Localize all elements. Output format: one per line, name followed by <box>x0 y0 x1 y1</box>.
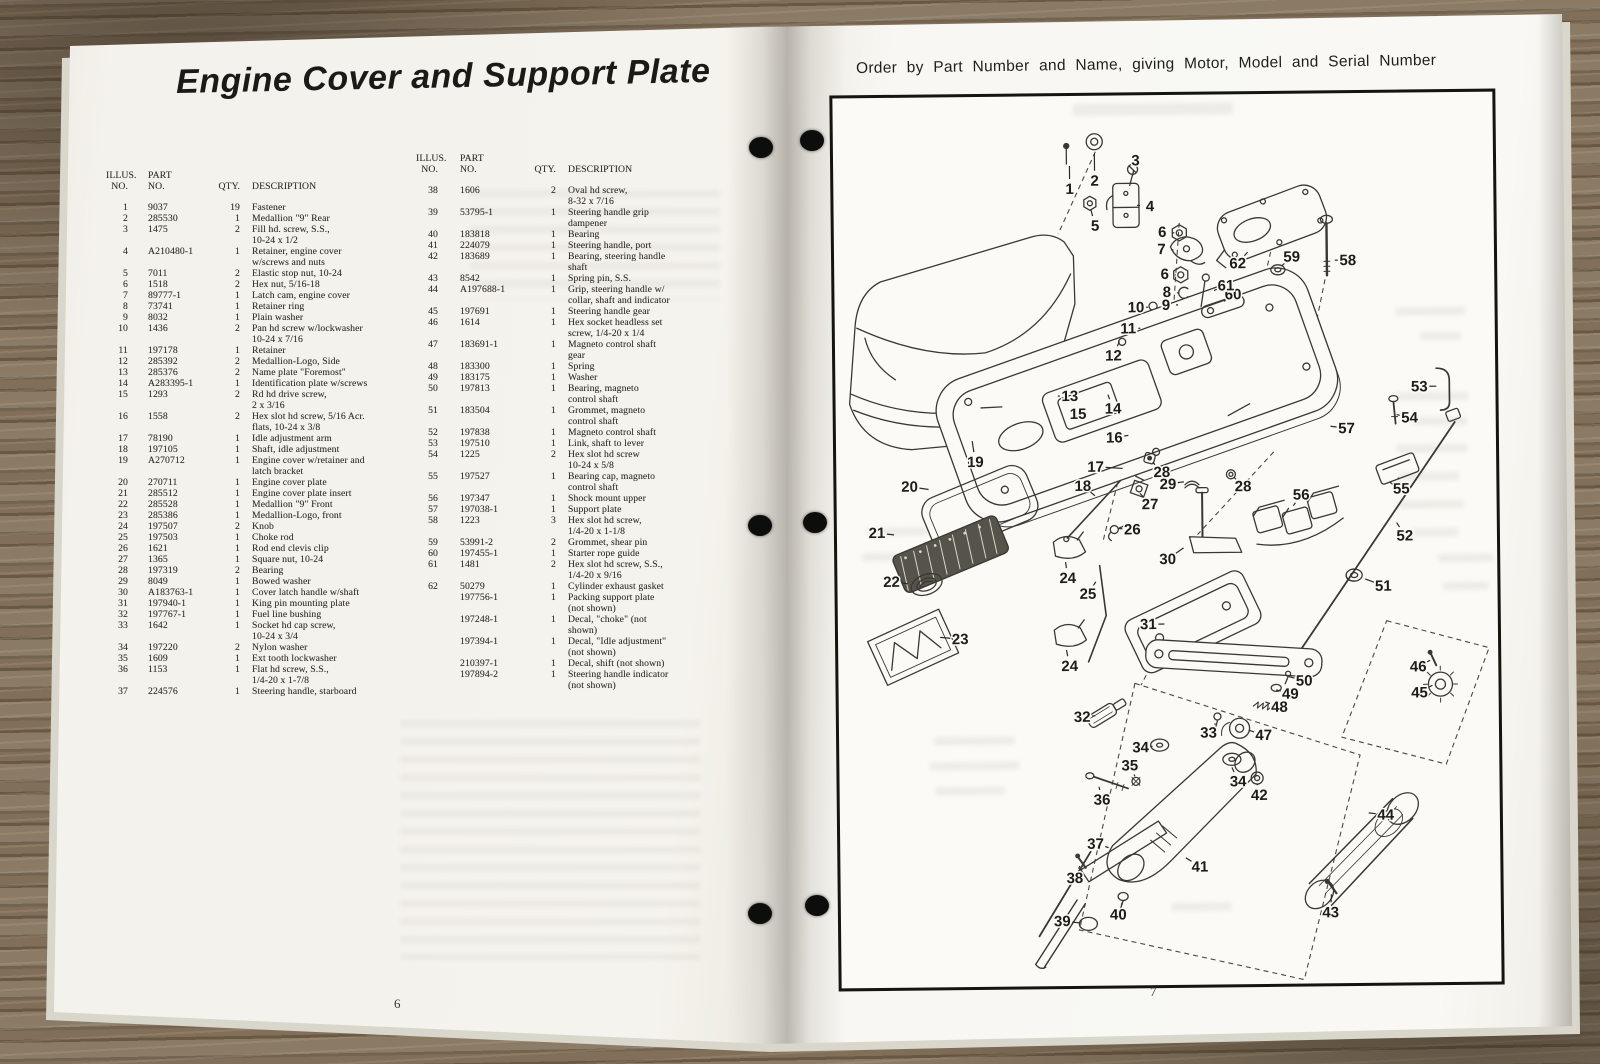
diagram-callout-7: 7 <box>1157 241 1166 258</box>
cell-qty: 1 <box>526 306 556 317</box>
cell-illus-no: 26 <box>106 543 128 554</box>
cell-part-no: 285386 <box>128 510 212 521</box>
cell-qty: 1 <box>526 614 556 625</box>
cell-description: Retainer <box>240 345 382 356</box>
table-row: control shaft <box>416 482 750 493</box>
cell-illus-no: 18 <box>106 444 128 455</box>
diagram-callout-37: 37 <box>1087 836 1104 853</box>
table-row: 1/4-20 x 1-7/8 <box>106 675 382 686</box>
cell-part-no: 183691-1 <box>438 339 526 350</box>
cell-illus-no: 43 <box>416 273 438 284</box>
table-row: 17781901Idle adjustment arm <box>106 433 382 444</box>
cell-description: Washer <box>556 372 750 383</box>
header-gap <box>416 175 750 185</box>
header-part: NO. <box>438 164 526 175</box>
cell-qty: 1 <box>212 686 240 697</box>
diagram-callout-6: 6 <box>1158 224 1167 241</box>
diagram-callout-20: 20 <box>901 479 918 496</box>
cell-description: 10-24 x 3/4 <box>240 631 382 642</box>
table-row: 210397-11Decal, shift (not shown) <box>416 658 750 669</box>
cell-description: Steering handle, port <box>556 240 750 251</box>
table-header-line: ILLUS.PART <box>106 170 382 181</box>
cell-illus-no: 50 <box>416 383 438 394</box>
cell-description: control shaft <box>556 416 750 427</box>
cell-qty: 1 <box>526 317 556 328</box>
header-part: PART <box>128 170 212 181</box>
header-illus: ILLUS. <box>106 170 128 181</box>
diagram-callout-52: 52 <box>1396 527 1413 544</box>
cell-part-no: 1293 <box>128 389 212 400</box>
cell-qty: 1 <box>526 636 556 647</box>
table-row: 2616211Rod end clevis clip <box>106 543 382 554</box>
callout-leader-line <box>1066 650 1067 656</box>
cell-part-no: 50279 <box>438 581 526 592</box>
cell-description: dampener <box>556 218 750 229</box>
cell-qty: 1 <box>526 383 556 394</box>
table-row: 222855281Medallion "9" Front <box>106 499 382 510</box>
cell-illus-no: 30 <box>106 587 128 598</box>
table-row: 341972202Nylon washer <box>106 642 382 653</box>
table-row: 60197455-11Starter rope guide <box>416 548 750 559</box>
cell-description: Ext tooth lockwasher <box>240 653 382 664</box>
diagram-callout-50: 50 <box>1296 672 1313 689</box>
cell-description: Bearing, magneto <box>556 383 750 394</box>
diagram-callout-9: 9 <box>1162 297 1171 314</box>
cell-description: Fuel line bushing <box>240 609 382 620</box>
header-gap <box>106 192 382 202</box>
cell-description: Engine cover w/retainer and <box>240 455 382 466</box>
cell-illus-no: 60 <box>416 548 438 559</box>
cell-illus-no: 34 <box>106 642 128 653</box>
cell-part-no: A210480-1 <box>128 246 212 257</box>
cell-description: Rod end clevis clip <box>240 543 382 554</box>
callout-leader-line <box>901 583 907 584</box>
cell-qty: 1 <box>526 372 556 383</box>
diagram-callout-15: 15 <box>1070 406 1087 423</box>
cell-description: Steering handle gear <box>556 306 750 317</box>
cell-description: Nylon washer <box>240 642 382 653</box>
table-header-line: NO.NO.QTY.DESCRIPTION <box>416 164 750 175</box>
diagram-callout-59: 59 <box>1283 249 1300 266</box>
table-row: 8-32 x 7/16 <box>416 196 750 207</box>
cell-part-no: 197105 <box>128 444 212 455</box>
cell-part-no: 270711 <box>128 477 212 488</box>
cell-illus-no: 39 <box>416 207 438 218</box>
cell-qty: 1 <box>526 284 556 295</box>
cell-part-no: 197347 <box>438 493 526 504</box>
cell-part-no: A197688-1 <box>438 284 526 295</box>
table-row: 401838181Bearing <box>416 229 750 240</box>
table-row: 412240791Steering handle, port <box>416 240 750 251</box>
punch-hole <box>749 137 773 158</box>
diagram-callout-5: 5 <box>1091 218 1100 235</box>
cell-illus-no: 10 <box>106 323 128 334</box>
knob-24b <box>1054 620 1086 647</box>
diagram-callout-32: 32 <box>1074 709 1091 726</box>
cell-qty: 2 <box>212 367 240 378</box>
cell-qty: 1 <box>526 669 556 680</box>
page-number-right: 7 <box>1150 984 1157 1000</box>
diagram-callout-4: 4 <box>1146 198 1155 215</box>
cell-description: Bowed washer <box>240 576 382 587</box>
cell-part-no: 285528 <box>128 499 212 510</box>
cell-illus-no: 32 <box>106 609 128 620</box>
cell-illus-no: 41 <box>416 240 438 251</box>
cell-part-no: 73741 <box>128 301 212 312</box>
retainer-ring-8 <box>1179 287 1188 298</box>
cell-qty: 19 <box>212 202 240 213</box>
table-row: dampener <box>416 218 750 229</box>
cell-part-no: 1475 <box>128 224 212 235</box>
cell-qty: 2 <box>212 268 240 279</box>
cell-part-no: 1153 <box>128 664 212 675</box>
cell-qty: 1 <box>212 378 240 389</box>
cell-part-no: 1621 <box>128 543 212 554</box>
cell-part-no: 224576 <box>128 686 212 697</box>
cell-description: Hex socket headless set <box>556 317 750 328</box>
table-row: (not shown) <box>416 603 750 614</box>
cell-description: Decal, "choke" (not <box>556 614 750 625</box>
callout-leader-line <box>1091 210 1093 216</box>
callout-leader-line <box>1427 660 1430 662</box>
table-row: 241975072Knob <box>106 521 382 532</box>
callout-leader-line <box>1331 894 1332 902</box>
showthrough-smudge <box>400 720 700 960</box>
cell-illus-no: 44 <box>416 284 438 295</box>
diagram-callout-34: 34 <box>1132 739 1150 756</box>
parts-table-column-1: ILLUS.PARTNO.NO.QTY.DESCRIPTION1903719Fa… <box>106 170 382 697</box>
page-title: Engine Cover and Support Plate <box>176 53 657 102</box>
flat-screw-36 <box>1086 772 1128 790</box>
cell-illus-no: 33 <box>106 620 128 631</box>
cell-qty: 2 <box>526 537 556 548</box>
callout-leader-line <box>887 534 894 535</box>
cell-qty: 1 <box>526 240 556 251</box>
table-row: 251975031Choke rod <box>106 532 382 543</box>
callout-leader-line <box>1397 415 1400 416</box>
photo-stage: Engine Cover and Support Plate ILLUS.PAR… <box>0 0 1600 1064</box>
link-shaft-to-lever-53 <box>1436 368 1449 410</box>
cell-illus-no: 14 <box>106 378 128 389</box>
magneto-gear-47 <box>1221 718 1249 738</box>
cell-qty: 1 <box>526 273 556 284</box>
cell-description: Medallion "9" Front <box>240 499 382 510</box>
callout-leader-line <box>1331 426 1337 427</box>
cell-illus-no: 38 <box>416 185 438 196</box>
cell-illus-no: 57 <box>416 504 438 515</box>
header-part: PART <box>438 153 526 164</box>
cell-illus-no: 17 <box>106 433 128 444</box>
diagram-callout-57: 57 <box>1338 420 1355 437</box>
cell-description: Oval hd screw, <box>556 185 750 196</box>
cell-description: Retainer, engine cover <box>240 246 382 257</box>
medallion-ring-2 <box>1086 134 1102 150</box>
cover-plate-insert-21 <box>891 514 1010 594</box>
cell-qty: 1 <box>212 543 240 554</box>
diagram-callout-22: 22 <box>883 574 900 591</box>
callout-leader-line <box>1176 548 1184 553</box>
cell-description: Magneto control shaft <box>556 339 750 350</box>
cell-qty: 1 <box>212 488 240 499</box>
table-row: 551975271Bearing cap, magneto <box>416 471 750 482</box>
table-row: 491831751Washer <box>416 372 750 383</box>
callout-leader-line <box>1124 435 1128 436</box>
cell-illus-no: 20 <box>106 477 128 488</box>
cell-part-no: 1223 <box>438 515 526 526</box>
table-row: 232853861Medallion-Logo, front <box>106 510 382 521</box>
bowed-washer-29 <box>1185 481 1199 488</box>
table-row: 122853922Medallion-Logo, Side <box>106 356 382 367</box>
cell-qty: 1 <box>526 361 556 372</box>
table-row: 4616141Hex socket headless set <box>416 317 750 328</box>
cell-part-no: 183175 <box>438 372 526 383</box>
cell-part-no: 1609 <box>128 653 212 664</box>
cell-description: Engine cover plate insert <box>240 488 382 499</box>
table-row: 481833001Spring <box>416 361 750 372</box>
callout-leader-line <box>1365 579 1374 582</box>
cell-qty: 2 <box>212 389 240 400</box>
cell-description: Bearing <box>240 565 382 576</box>
table-row: 10-24 x 5/8 <box>416 460 750 471</box>
cell-description: Decal, "Idle adjustment" <box>556 636 750 647</box>
cell-illus-no: 48 <box>416 361 438 372</box>
cell-illus-no: 25 <box>106 532 128 543</box>
cell-qty: 2 <box>212 323 240 334</box>
cell-description: gear <box>556 350 750 361</box>
callout-leader-line <box>1178 482 1184 483</box>
cell-part-no: 53795-1 <box>438 207 526 218</box>
handle-grip-44 <box>1298 786 1425 914</box>
table-row: 789777-11Latch cam, engine cover <box>106 290 382 301</box>
cell-description: Identification plate w/screws <box>240 378 382 389</box>
cell-part-no: 197691 <box>438 306 526 317</box>
cell-illus-no: 2 <box>106 213 128 224</box>
cell-illus-no: 3 <box>106 224 128 235</box>
o-ring-39 <box>1079 917 1097 930</box>
table-row: flats, 10-24 x 3/8 <box>106 422 382 433</box>
cell-description: Square nut, 10-24 <box>240 554 382 565</box>
diagram-callout-42: 42 <box>1251 787 1268 804</box>
cell-description: Bearing, steering handle <box>556 251 750 262</box>
cell-part-no: 197319 <box>128 565 212 576</box>
diagram-callout-54: 54 <box>1401 409 1419 426</box>
cell-part-no: 8049 <box>128 576 212 587</box>
cell-description: Medallion-Logo, Side <box>240 356 382 367</box>
cell-description: latch bracket <box>240 466 382 477</box>
cell-description: (not shown) <box>556 680 750 691</box>
callout-leader-line <box>1105 847 1108 848</box>
callout-leader-line <box>1289 677 1294 678</box>
order-instruction: Order by Part Number and Name, giving Mo… <box>856 52 1426 78</box>
table-row: 615182Hex nut, 5/16-18 <box>106 279 382 290</box>
diagram-callout-58: 58 <box>1339 252 1356 269</box>
diagram-callout-14: 14 <box>1105 400 1123 417</box>
table-row: 1014362Pan hd screw w/lockwasher <box>106 323 382 334</box>
cell-description: Rd hd drive screw, <box>240 389 382 400</box>
cell-qty: 1 <box>212 213 240 224</box>
table-row: 30A183763-11Cover latch handle w/shaft <box>106 587 382 598</box>
table-header-line: NO.NO.QTY.DESCRIPTION <box>106 181 382 192</box>
cell-qty: 1 <box>212 455 240 466</box>
table-row: 1512932Rd hd drive screw, <box>106 389 382 400</box>
cell-description: Packing support plate <box>556 592 750 603</box>
cell-illus-no: 35 <box>106 653 128 664</box>
diagram-callout-61: 61 <box>1217 277 1234 294</box>
cell-description: Flat hd screw, S.S., <box>240 664 382 675</box>
cell-illus-no: 55 <box>416 471 438 482</box>
callout-leader-line <box>1397 523 1400 528</box>
table-row: 212855121Engine cover plate insert <box>106 488 382 499</box>
cell-description: Hex slot hd screw, <box>556 515 750 526</box>
cell-description: Fill hd. screw, S.S., <box>240 224 382 235</box>
diagram-callout-53: 53 <box>1411 378 1428 395</box>
cell-description: w/screws and nuts <box>240 257 382 268</box>
cell-illus-no: 8 <box>106 301 128 312</box>
table-row: collar, shaft and indicator <box>416 295 750 306</box>
header-desc: DESCRIPTION <box>240 181 382 192</box>
cell-description: Hex slot hd screw, 5/16 Acr. <box>240 411 382 422</box>
cell-part-no: 1365 <box>128 554 212 565</box>
cell-illus-no: 29 <box>106 576 128 587</box>
cell-qty: 1 <box>526 592 556 603</box>
diagram-callout-21: 21 <box>869 525 886 542</box>
table-row: latch bracket <box>106 466 382 477</box>
screw-58 <box>1320 215 1333 275</box>
diagram-callout-30: 30 <box>1159 551 1176 568</box>
cell-part-no: 197248-1 <box>438 614 526 625</box>
header-part: NO. <box>128 181 212 192</box>
cell-qty: 1 <box>526 207 556 218</box>
cell-illus-no: 13 <box>106 367 128 378</box>
latch-handle-30 <box>1189 487 1242 553</box>
fastener-screw-1 <box>1064 144 1069 165</box>
header-desc: DESCRIPTION <box>556 164 750 175</box>
cell-part-no: 1225 <box>438 449 526 460</box>
cell-description: Name plate "Foremost" <box>240 367 382 378</box>
table-row: control shaft <box>416 394 750 405</box>
cell-part-no: 197455-1 <box>438 548 526 559</box>
table-row: 202707111Engine cover plate <box>106 477 382 488</box>
cell-description: Starter rope guide <box>556 548 750 559</box>
table-row: 62502791Cylinder exhaust gasket <box>416 581 750 592</box>
table-row: 501978131Bearing, magneto <box>416 383 750 394</box>
cell-qty: 1 <box>212 664 240 675</box>
table-row: 570112Elastic stop nut, 10-24 <box>106 268 382 279</box>
cell-part-no: 197813 <box>438 383 526 394</box>
table-row: 32197767-11Fuel line bushing <box>106 609 382 620</box>
cell-part-no: 197756-1 <box>438 592 526 603</box>
table-row: 511835041Grommet, magneto <box>416 405 750 416</box>
cell-illus-no: 59 <box>416 537 438 548</box>
cell-illus-no: 62 <box>416 581 438 592</box>
manual-spread: Engine Cover and Support Plate ILLUS.PAR… <box>0 0 1600 1064</box>
cell-illus-no: 51 <box>416 405 438 416</box>
header-illus: NO. <box>106 181 128 192</box>
diagram-callout-34: 34 <box>1230 773 1248 790</box>
table-row: 181971051Shaft, idle adjustment <box>106 444 382 455</box>
cell-illus-no: 47 <box>416 339 438 350</box>
cell-part-no: 197838 <box>438 427 526 438</box>
cell-part-no: 197507 <box>128 521 212 532</box>
cell-illus-no: 21 <box>106 488 128 499</box>
cell-qty: 1 <box>526 438 556 449</box>
diagram-callout-47: 47 <box>1255 727 1272 744</box>
cell-qty: 1 <box>212 620 240 631</box>
diagram-callout-16: 16 <box>1106 429 1123 446</box>
cell-description: control shaft <box>556 394 750 405</box>
cell-qty: 1 <box>212 312 240 323</box>
diagram-callout-19: 19 <box>967 454 984 471</box>
diagram-callout-43: 43 <box>1322 904 1339 921</box>
cell-illus-no: 49 <box>416 372 438 383</box>
diagram-callout-29: 29 <box>1159 476 1176 493</box>
cell-part-no: 8032 <box>128 312 212 323</box>
table-row: 421836891Bearing, steering handle <box>416 251 750 262</box>
diagram-callout-33: 33 <box>1200 724 1217 741</box>
cell-description: 1/4-20 x 9/16 <box>556 570 750 581</box>
table-row: 5812233Hex slot hd screw, <box>416 515 750 526</box>
steering-handle-gear-45 <box>1423 666 1457 702</box>
cell-description: Cylinder exhaust gasket <box>556 581 750 592</box>
diagram-callout-41: 41 <box>1192 859 1209 876</box>
cell-part-no: 285376 <box>128 367 212 378</box>
cell-illus-no: 7 <box>106 290 128 301</box>
punch-hole <box>748 903 772 924</box>
diagram-callout-25: 25 <box>1080 586 1097 603</box>
cell-illus-no: 61 <box>416 559 438 570</box>
cell-description: Choke rod <box>240 532 382 543</box>
table-row: screw, 1/4-20 x 1/4 <box>416 328 750 339</box>
cell-qty: 1 <box>526 405 556 416</box>
cell-description: Decal, shift (not shown) <box>556 658 750 669</box>
cell-part-no: 197178 <box>128 345 212 356</box>
cell-part-no: 1518 <box>128 279 212 290</box>
diagram-callout-45: 45 <box>1411 684 1428 701</box>
cell-description: Knob <box>240 521 382 532</box>
cell-qty: 2 <box>526 185 556 196</box>
diagram-callout-28: 28 <box>1235 478 1252 495</box>
callout-leader-line <box>1369 813 1376 814</box>
cell-part-no: 285530 <box>128 213 212 224</box>
cell-part-no: A283395-1 <box>128 378 212 389</box>
table-row: 2 x 3/16 <box>106 400 382 411</box>
table-row: 521978381Magneto control shaft <box>416 427 750 438</box>
cell-illus-no: 31 <box>106 598 128 609</box>
cell-description: 10-24 x 5/8 <box>556 460 750 471</box>
diagram-callout-13: 13 <box>1061 388 1078 405</box>
cell-description: Elastic stop nut, 10-24 <box>240 268 382 279</box>
cell-description: Grommet, shear pin <box>556 537 750 548</box>
table-row: 531975101Link, shaft to lever <box>416 438 750 449</box>
cell-description: Link, shaft to lever <box>556 438 750 449</box>
table-row: 14A283395-11Identification plate w/screw… <box>106 378 382 389</box>
cell-part-no: 285512 <box>128 488 212 499</box>
table-row: 1615582Hex slot hd screw, 5/16 Acr. <box>106 411 382 422</box>
diagram-callout-2: 2 <box>1090 173 1099 190</box>
cell-part-no: 183818 <box>438 229 526 240</box>
cell-qty: 2 <box>212 521 240 532</box>
table-row: 44A197688-11Grip, steering handle w/ <box>416 284 750 295</box>
cell-part-no: 197510 <box>438 438 526 449</box>
cell-description: 1/4-20 x 1-1/8 <box>556 526 750 537</box>
diagram-callout-1: 1 <box>1065 181 1074 198</box>
callout-leader-line <box>1066 562 1067 568</box>
header-qty: QTY. <box>212 181 240 192</box>
cell-description: 10-24 x 7/16 <box>240 334 382 345</box>
diagram-callout-35: 35 <box>1121 757 1138 774</box>
callout-leader-line <box>919 488 928 490</box>
cell-description: Shaft, idle adjustment <box>240 444 382 455</box>
